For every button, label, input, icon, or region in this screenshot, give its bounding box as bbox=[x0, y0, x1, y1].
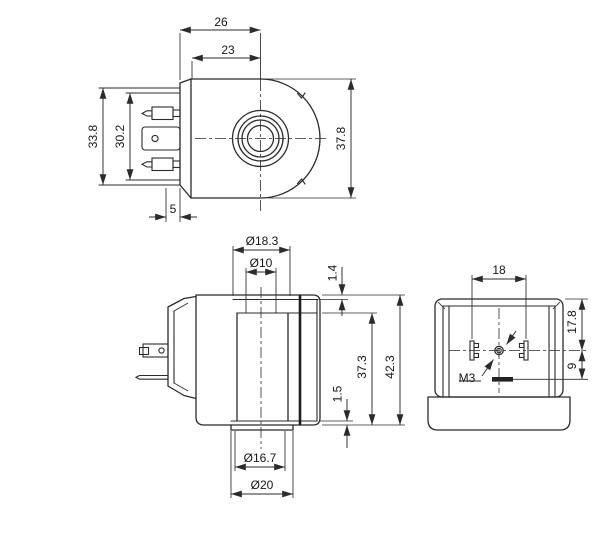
label-m3: M3 bbox=[459, 371, 476, 385]
dim-5: 5 bbox=[170, 202, 177, 216]
dim-1-5: 1.5 bbox=[331, 385, 345, 402]
dim-42-3: 42.3 bbox=[383, 355, 397, 379]
dim-20: Ø20 bbox=[251, 478, 274, 492]
cable-slot bbox=[492, 377, 513, 382]
side-view-outline bbox=[136, 295, 320, 430]
dim-18: 18 bbox=[492, 263, 506, 277]
m3-screw-hole: M3 bbox=[459, 331, 516, 385]
dim-17-8: 17.8 bbox=[565, 310, 579, 334]
terminal-hole bbox=[159, 348, 164, 353]
connector-top-view: M3 18 17.8 9 bbox=[428, 263, 588, 430]
dim-26: 26 bbox=[214, 15, 228, 29]
dim-37-8: 37.8 bbox=[334, 126, 348, 150]
solenoid-coil-drawing: 26 23 33.8 30.2 5 37.8 bbox=[0, 0, 605, 535]
front-view-dimensions: 26 23 33.8 30.2 5 37.8 bbox=[86, 15, 356, 222]
dim-10: Ø10 bbox=[250, 256, 273, 270]
front-view-centerlines bbox=[195, 33, 329, 211]
dim-16-7: Ø16.7 bbox=[244, 451, 277, 465]
dim-33-8: 33.8 bbox=[86, 124, 100, 148]
dim-30-2: 30.2 bbox=[113, 124, 127, 148]
front-view: 26 23 33.8 30.2 5 37.8 bbox=[86, 15, 356, 222]
dim-18-3: Ø18.3 bbox=[246, 234, 279, 248]
ground-pin-hole bbox=[152, 135, 158, 141]
technical-drawing-canvas: 26 23 33.8 30.2 5 37.8 bbox=[0, 0, 605, 535]
front-view-terminal-pins bbox=[142, 107, 180, 171]
side-view: Ø18.3 Ø10 1.4 37.3 42.3 1.5 bbox=[136, 234, 405, 498]
connector-top-dimensions: 18 17.8 9 bbox=[472, 263, 588, 379]
dim-37-3: 37.3 bbox=[355, 355, 369, 379]
dim-9: 9 bbox=[565, 362, 579, 369]
dim-1-4: 1.4 bbox=[326, 264, 340, 281]
dim-23: 23 bbox=[221, 43, 235, 57]
side-view-dimensions: Ø18.3 Ø10 1.4 37.3 42.3 1.5 bbox=[231, 234, 405, 498]
